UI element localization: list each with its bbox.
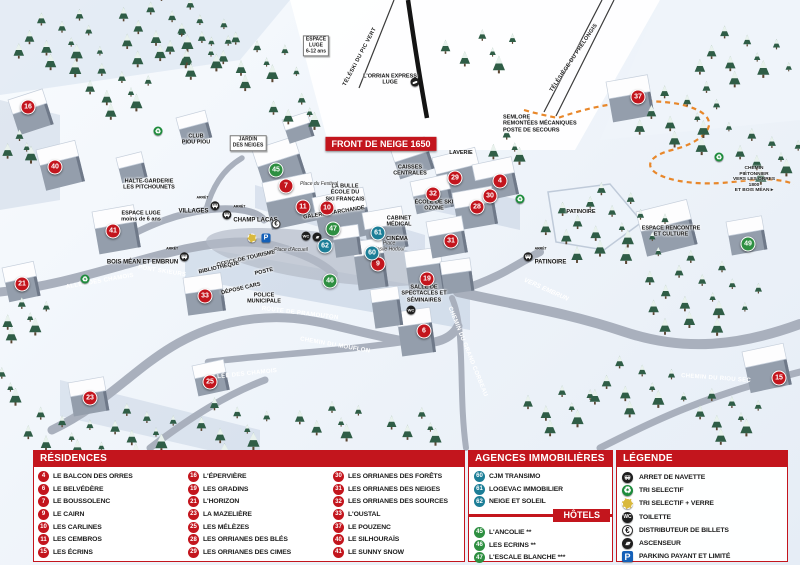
number-badge: 33 bbox=[333, 509, 344, 520]
residence-item-16: 16L'ÉPERVIÈRE bbox=[188, 470, 333, 483]
euro-icon: € bbox=[272, 220, 281, 229]
recycle-icon: ♻ bbox=[516, 195, 525, 204]
map-label: Place du Festival bbox=[300, 182, 338, 188]
map-label: FRONT DE NEIGE 1650 bbox=[325, 137, 436, 151]
map-label: OFFICE DE TOURISME bbox=[216, 249, 276, 269]
residences-panel: RÉSIDENCES 4LE BALCON DES ORRES6LE BELVÉ… bbox=[33, 450, 465, 562]
item-label: DISTRIBUTEUR DE BILLETS bbox=[639, 527, 729, 534]
bus-stop-villages: ARRÊTVILLAGES bbox=[178, 196, 219, 216]
agence-item-61: 61LOGEVAC IMMOBILIER bbox=[474, 483, 610, 496]
item-label: LE SUNNY SNOW bbox=[348, 549, 404, 556]
map-label: CHEMIN PIÉTONNIER VERS LES ORRES 1800 ET… bbox=[731, 166, 777, 194]
item-label: NEIGE ET SOLEIL bbox=[489, 498, 546, 505]
map-label: HALTE-GARDERIE LES PITCHOUNETS bbox=[123, 179, 175, 192]
number-badge: 47 bbox=[474, 552, 485, 563]
map-marker-21: 21 bbox=[15, 277, 30, 292]
number-badge: 61 bbox=[474, 484, 485, 495]
item-label: TRI SELECTIF bbox=[639, 487, 684, 494]
residence-item-41: 41LE SUNNY SNOW bbox=[333, 546, 462, 559]
legende-item: ARRET DE NAVETTE bbox=[622, 471, 785, 484]
map-label: ESPACE RENCONTRE ET CULTURE bbox=[642, 226, 701, 239]
map-marker-49: 49 bbox=[741, 237, 756, 252]
item-label: LE CAIRN bbox=[53, 511, 84, 518]
elevator-icon: ▴▾ bbox=[313, 233, 322, 242]
map-marker-45: 45 bbox=[269, 163, 284, 178]
item-label: TOILETTE bbox=[639, 514, 671, 521]
map-label: CHEMIN DU RIOU SEC bbox=[681, 373, 751, 385]
stop-arret-label: ARRÊT bbox=[233, 205, 277, 209]
item-label: LES ORRIANES DES NEIGES bbox=[348, 486, 440, 493]
legende-item: ♻TRI SELECTIF bbox=[622, 484, 785, 497]
number-badge: 28 bbox=[188, 534, 199, 545]
item-label: LE BOUSSOLENC bbox=[53, 498, 110, 505]
residence-item-6: 6LE BELVÉDÈRE bbox=[38, 483, 188, 496]
map-label: ALLÉE DES CHAMOIS bbox=[66, 273, 135, 292]
item-label: ASCENSEUR bbox=[639, 540, 681, 547]
toilet-icon: WC bbox=[407, 306, 416, 315]
map-label: ÉCOLE DE SKI OZONE bbox=[415, 200, 454, 213]
item-label: LE BELVÉDÈRE bbox=[53, 486, 103, 493]
glass-recycle-icon bbox=[248, 234, 257, 243]
number-badge: 11 bbox=[38, 534, 49, 545]
residence-item-40: 40LE SILHOURAÏS bbox=[333, 533, 462, 546]
item-label: L'ESCALE BLANCHE *** bbox=[489, 554, 565, 561]
hotel-item-47: 47L'ESCALE BLANCHE *** bbox=[474, 551, 610, 564]
map-label: DÉPOSE CARS bbox=[221, 281, 261, 296]
residence-item-29: 29LES ORRIANES DES CIMES bbox=[188, 546, 333, 559]
agences-list: 60CJM TRANSIMO61LOGEVAC IMMOBILIER62NEIG… bbox=[469, 467, 612, 508]
item-label: LES GRADINS bbox=[203, 486, 248, 493]
map-label: ALLÉE DES CHAMOIS bbox=[208, 368, 277, 382]
bus-stop-bois-m-an-et-embrun: ARRÊTBOIS MÉAN ET EMBRUN bbox=[107, 247, 189, 267]
residence-item-7: 7LE BOUSSOLENC bbox=[38, 495, 188, 508]
residence-item-11: 11LES CEMBROS bbox=[38, 533, 188, 546]
map-marker-4: 4 bbox=[493, 174, 508, 189]
map-marker-37: 37 bbox=[631, 90, 646, 105]
stop-name: BOIS MÉAN ET EMBRUN bbox=[107, 259, 178, 265]
hotel-item-45: 45L'ANCOLIE ** bbox=[474, 526, 610, 539]
residence-item-33: 33L'OUSTAL bbox=[333, 508, 462, 521]
item-label: LE SILHOURAÏS bbox=[348, 536, 399, 543]
map-marker-31: 31 bbox=[444, 234, 459, 249]
agences-panel-title: AGENCES IMMOBILIÈRES bbox=[469, 451, 612, 467]
map-label: CAISSES CENTRALES bbox=[393, 165, 427, 178]
map-label: L'ORRIAN EXPRESS LUGE bbox=[363, 74, 417, 87]
agence-item-62: 62NEIGE ET SOLEIL bbox=[474, 495, 610, 508]
number-badge: 32 bbox=[333, 496, 344, 507]
map-marker-25: 25 bbox=[203, 375, 218, 390]
number-badge: 19 bbox=[188, 484, 199, 495]
bus-icon bbox=[524, 253, 533, 262]
map-label: CABINET MÉDICAL bbox=[386, 216, 411, 229]
parking-icon: P bbox=[262, 234, 271, 243]
number-badge: 40 bbox=[333, 534, 344, 545]
map-label: LA BULLE ÉCOLE DU SKI FRANÇAIS bbox=[325, 184, 364, 203]
bus-icon bbox=[622, 472, 633, 483]
residence-item-15: 15LES ÉCRINS bbox=[38, 546, 188, 559]
item-label: CJM TRANSIMO bbox=[489, 473, 540, 480]
residence-item-32: 32LES ORRIANES DES SOURCES bbox=[333, 495, 462, 508]
stop-arret-label: ARRÊT bbox=[107, 247, 178, 251]
number-badge: 7 bbox=[38, 496, 49, 507]
map-label: BIBLIOTHÈQUE bbox=[198, 260, 240, 276]
map-label: ESPACE LUGE 6-12 ans bbox=[303, 35, 329, 56]
hotels-list: 45L'ANCOLIE **46LES ECRINS **47L'ESCALE … bbox=[469, 523, 612, 565]
item-label: LA MAZELIÈRE bbox=[203, 511, 252, 518]
residences-list: 4LE BALCON DES ORRES6LE BELVÉDÈRE7LE BOU… bbox=[34, 467, 464, 559]
map-marker-41: 41 bbox=[106, 224, 121, 239]
number-badge: 9 bbox=[38, 509, 49, 520]
number-badge: 45 bbox=[474, 527, 485, 538]
map-label: CHEMIN DU GRAND CORBEAU bbox=[446, 306, 489, 398]
residence-item-21: 21L'HORIZON bbox=[188, 495, 333, 508]
item-label: L'HORIZON bbox=[203, 498, 239, 505]
legende-panel-title: LÉGENDE bbox=[617, 451, 787, 467]
stop-name: VILLAGES bbox=[178, 208, 208, 214]
map-marker-60: 60 bbox=[365, 246, 380, 261]
map-label: JARDIN DES NEIGES bbox=[230, 135, 267, 151]
item-label: TRI SELECTIF + VERRE bbox=[639, 500, 714, 507]
residences-panel-title: RÉSIDENCES bbox=[34, 451, 464, 467]
residence-item-28: 28LES ORRIANES DES BLÉS bbox=[188, 533, 333, 546]
bus-stop-patinoire: ARRÊTPATINOIRE bbox=[524, 247, 567, 267]
agence-item-60: 60CJM TRANSIMO bbox=[474, 470, 610, 483]
number-badge: 21 bbox=[188, 496, 199, 507]
residence-item-25: 25LES MÉLÈZES bbox=[188, 521, 333, 534]
toilet-icon: WC bbox=[302, 232, 311, 241]
item-label: LE BALCON DES ORRES bbox=[53, 473, 133, 480]
map-label: PATINOIRE bbox=[566, 209, 595, 215]
resort-map: FRONT DE NEIGE 1650L'ORRIAN EXPRESS LUGE… bbox=[0, 0, 800, 565]
map-marker-6: 6 bbox=[417, 324, 432, 339]
map-marker-40: 40 bbox=[48, 160, 63, 175]
map-marker-33: 33 bbox=[198, 289, 213, 304]
number-badge: 30 bbox=[333, 471, 344, 482]
number-badge: 31 bbox=[333, 484, 344, 495]
hotels-panel-title: HÔTELS bbox=[553, 509, 610, 522]
parking-icon: P bbox=[622, 551, 633, 562]
legende-item: WCTOILETTE bbox=[622, 511, 785, 524]
residence-item-10: 10LES CARLINES bbox=[38, 521, 188, 534]
item-label: L'ÉPERVIÈRE bbox=[203, 473, 246, 480]
recycle-icon: ♻ bbox=[81, 275, 90, 284]
recycle-icon: ♻ bbox=[154, 127, 163, 136]
bus-icon bbox=[211, 202, 220, 211]
map-label: Place d'Accueil bbox=[274, 248, 308, 254]
map-label: POSTE bbox=[254, 267, 274, 277]
number-badge: 4 bbox=[38, 471, 49, 482]
map-overlay-layer: FRONT DE NEIGE 1650L'ORRIAN EXPRESS LUGE… bbox=[0, 0, 800, 448]
map-marker-16: 16 bbox=[21, 100, 36, 115]
item-label: ARRET DE NAVETTE bbox=[639, 474, 705, 481]
number-badge: 46 bbox=[474, 540, 485, 551]
number-badge: 37 bbox=[333, 522, 344, 533]
item-label: LES CARLINES bbox=[53, 524, 102, 531]
item-label: LES ÉCRINS bbox=[53, 549, 93, 556]
number-badge: 60 bbox=[474, 471, 485, 482]
item-label: LES ORRIANES DES CIMES bbox=[203, 549, 291, 556]
residence-item-4: 4LE BALCON DES ORRES bbox=[38, 470, 188, 483]
map-marker-10: 10 bbox=[320, 201, 335, 216]
recycle-icon: ♻ bbox=[715, 153, 724, 162]
map-label: LAVERIE bbox=[449, 150, 472, 156]
euro-icon: € bbox=[622, 525, 633, 536]
map-marker-61: 61 bbox=[371, 226, 386, 241]
map-marker-28: 28 bbox=[470, 200, 485, 215]
residence-item-19: 19LES GRADINS bbox=[188, 483, 333, 496]
hotels-header: HÔTELS bbox=[469, 509, 612, 522]
legende-item: TRI SELECTIF + VERRE bbox=[622, 497, 785, 510]
map-label: ESPACE LUGE moins de 6 ans bbox=[121, 211, 161, 224]
stop-name: PATINOIRE bbox=[535, 259, 567, 265]
map-label: PONT SKIEURS bbox=[137, 265, 186, 279]
number-badge: 23 bbox=[188, 509, 199, 520]
item-label: LES MÉLÈZES bbox=[203, 524, 249, 531]
bus-icon bbox=[222, 211, 231, 220]
map-marker-30: 30 bbox=[483, 189, 498, 204]
recycle-icon: ♻ bbox=[622, 485, 633, 496]
number-badge: 15 bbox=[38, 547, 49, 558]
map-label: CINÉMA bbox=[386, 236, 408, 242]
number-badge: 62 bbox=[474, 496, 485, 507]
sled-icon bbox=[411, 78, 420, 87]
residence-item-31: 31LES ORRIANES DES NEIGES bbox=[333, 483, 462, 496]
map-label: CLUB PIOU PIOU bbox=[182, 134, 210, 147]
number-badge: 6 bbox=[38, 484, 49, 495]
toilet-icon: WC bbox=[622, 512, 633, 523]
map-label: SALLE DE SPECTACLES ET SÉMINAIRES bbox=[401, 285, 446, 304]
residence-item-37: 37LE POUZENC bbox=[333, 521, 462, 534]
legende-list: ARRET DE NAVETTE♻TRI SELECTIFTRI SELECTI… bbox=[617, 467, 787, 563]
item-label: LE POUZENC bbox=[348, 524, 391, 531]
number-badge: 25 bbox=[188, 522, 199, 533]
item-label: LES ORRIANES DES SOURCES bbox=[348, 498, 448, 505]
legende-item: PPARKING PAYANT ET LIMITÉ bbox=[622, 550, 785, 563]
map-marker-47: 47 bbox=[326, 222, 341, 237]
item-label: L'ANCOLIE ** bbox=[489, 529, 531, 536]
item-label: PARKING PAYANT ET LIMITÉ bbox=[639, 553, 730, 560]
item-label: LES CEMBROS bbox=[53, 536, 102, 543]
map-marker-29: 29 bbox=[448, 171, 463, 186]
hotel-item-46: 46LES ECRINS ** bbox=[474, 539, 610, 552]
item-label: L'OUSTAL bbox=[348, 511, 380, 518]
map-marker-7: 7 bbox=[279, 179, 294, 194]
map-marker-62: 62 bbox=[318, 239, 333, 254]
item-label: LES ORRIANES DES FORÊTS bbox=[348, 473, 442, 480]
stop-arret-label: ARRÊT bbox=[178, 196, 208, 200]
number-badge: 41 bbox=[333, 547, 344, 558]
map-marker-23: 23 bbox=[83, 391, 98, 406]
legende-item: €DISTRIBUTEUR DE BILLETS bbox=[622, 524, 785, 537]
map-label: CHEMIN DU MOUFLON bbox=[299, 336, 370, 355]
residence-item-23: 23LA MAZELIÈRE bbox=[188, 508, 333, 521]
map-label: TÉLÉSIÈGE DU PRÉLONGIS bbox=[549, 23, 599, 94]
number-badge: 29 bbox=[188, 547, 199, 558]
map-label: TÉLÉSKI DU PIC VERT bbox=[342, 27, 378, 88]
map-marker-46: 46 bbox=[323, 274, 338, 289]
map-label: VERS EMBRUN bbox=[523, 277, 570, 303]
number-badge: 10 bbox=[38, 522, 49, 533]
bus-icon bbox=[180, 253, 189, 262]
map-marker-11: 11 bbox=[296, 200, 311, 215]
map-marker-15: 15 bbox=[772, 371, 787, 386]
map-label: SEMLORE REMONTÉES MÉCANIQUES POSTE DE SE… bbox=[503, 115, 577, 134]
item-label: LES ECRINS ** bbox=[489, 542, 536, 549]
legende-item: ▴▾ASCENSEUR bbox=[622, 537, 785, 550]
map-label: ROUTE DE PRAMOUTON bbox=[261, 306, 339, 322]
map-marker-19: 19 bbox=[420, 272, 435, 287]
residence-item-9: 9LE CAIRN bbox=[38, 508, 188, 521]
map-label: POLICE MUNICIPALE bbox=[247, 293, 281, 306]
item-label: LOGEVAC IMMOBILIER bbox=[489, 486, 563, 493]
item-label: LES ORRIANES DES BLÉS bbox=[203, 536, 288, 543]
bus-stop-champ-lacas: ARRÊTCHAMP LACAS bbox=[222, 205, 277, 225]
glass-recycle-icon bbox=[622, 498, 633, 509]
residence-item-30: 30LES ORRIANES DES FORÊTS bbox=[333, 470, 462, 483]
number-badge: 16 bbox=[188, 471, 199, 482]
legende-panel: LÉGENDE ARRET DE NAVETTE♻TRI SELECTIFTRI… bbox=[616, 450, 788, 562]
elevator-icon: ▴▾ bbox=[622, 538, 633, 549]
map-marker-32: 32 bbox=[426, 187, 441, 202]
agences-hotels-panel: AGENCES IMMOBILIÈRES 60CJM TRANSIMO61LOG… bbox=[468, 450, 613, 562]
stop-arret-label: ARRÊT bbox=[535, 247, 567, 251]
